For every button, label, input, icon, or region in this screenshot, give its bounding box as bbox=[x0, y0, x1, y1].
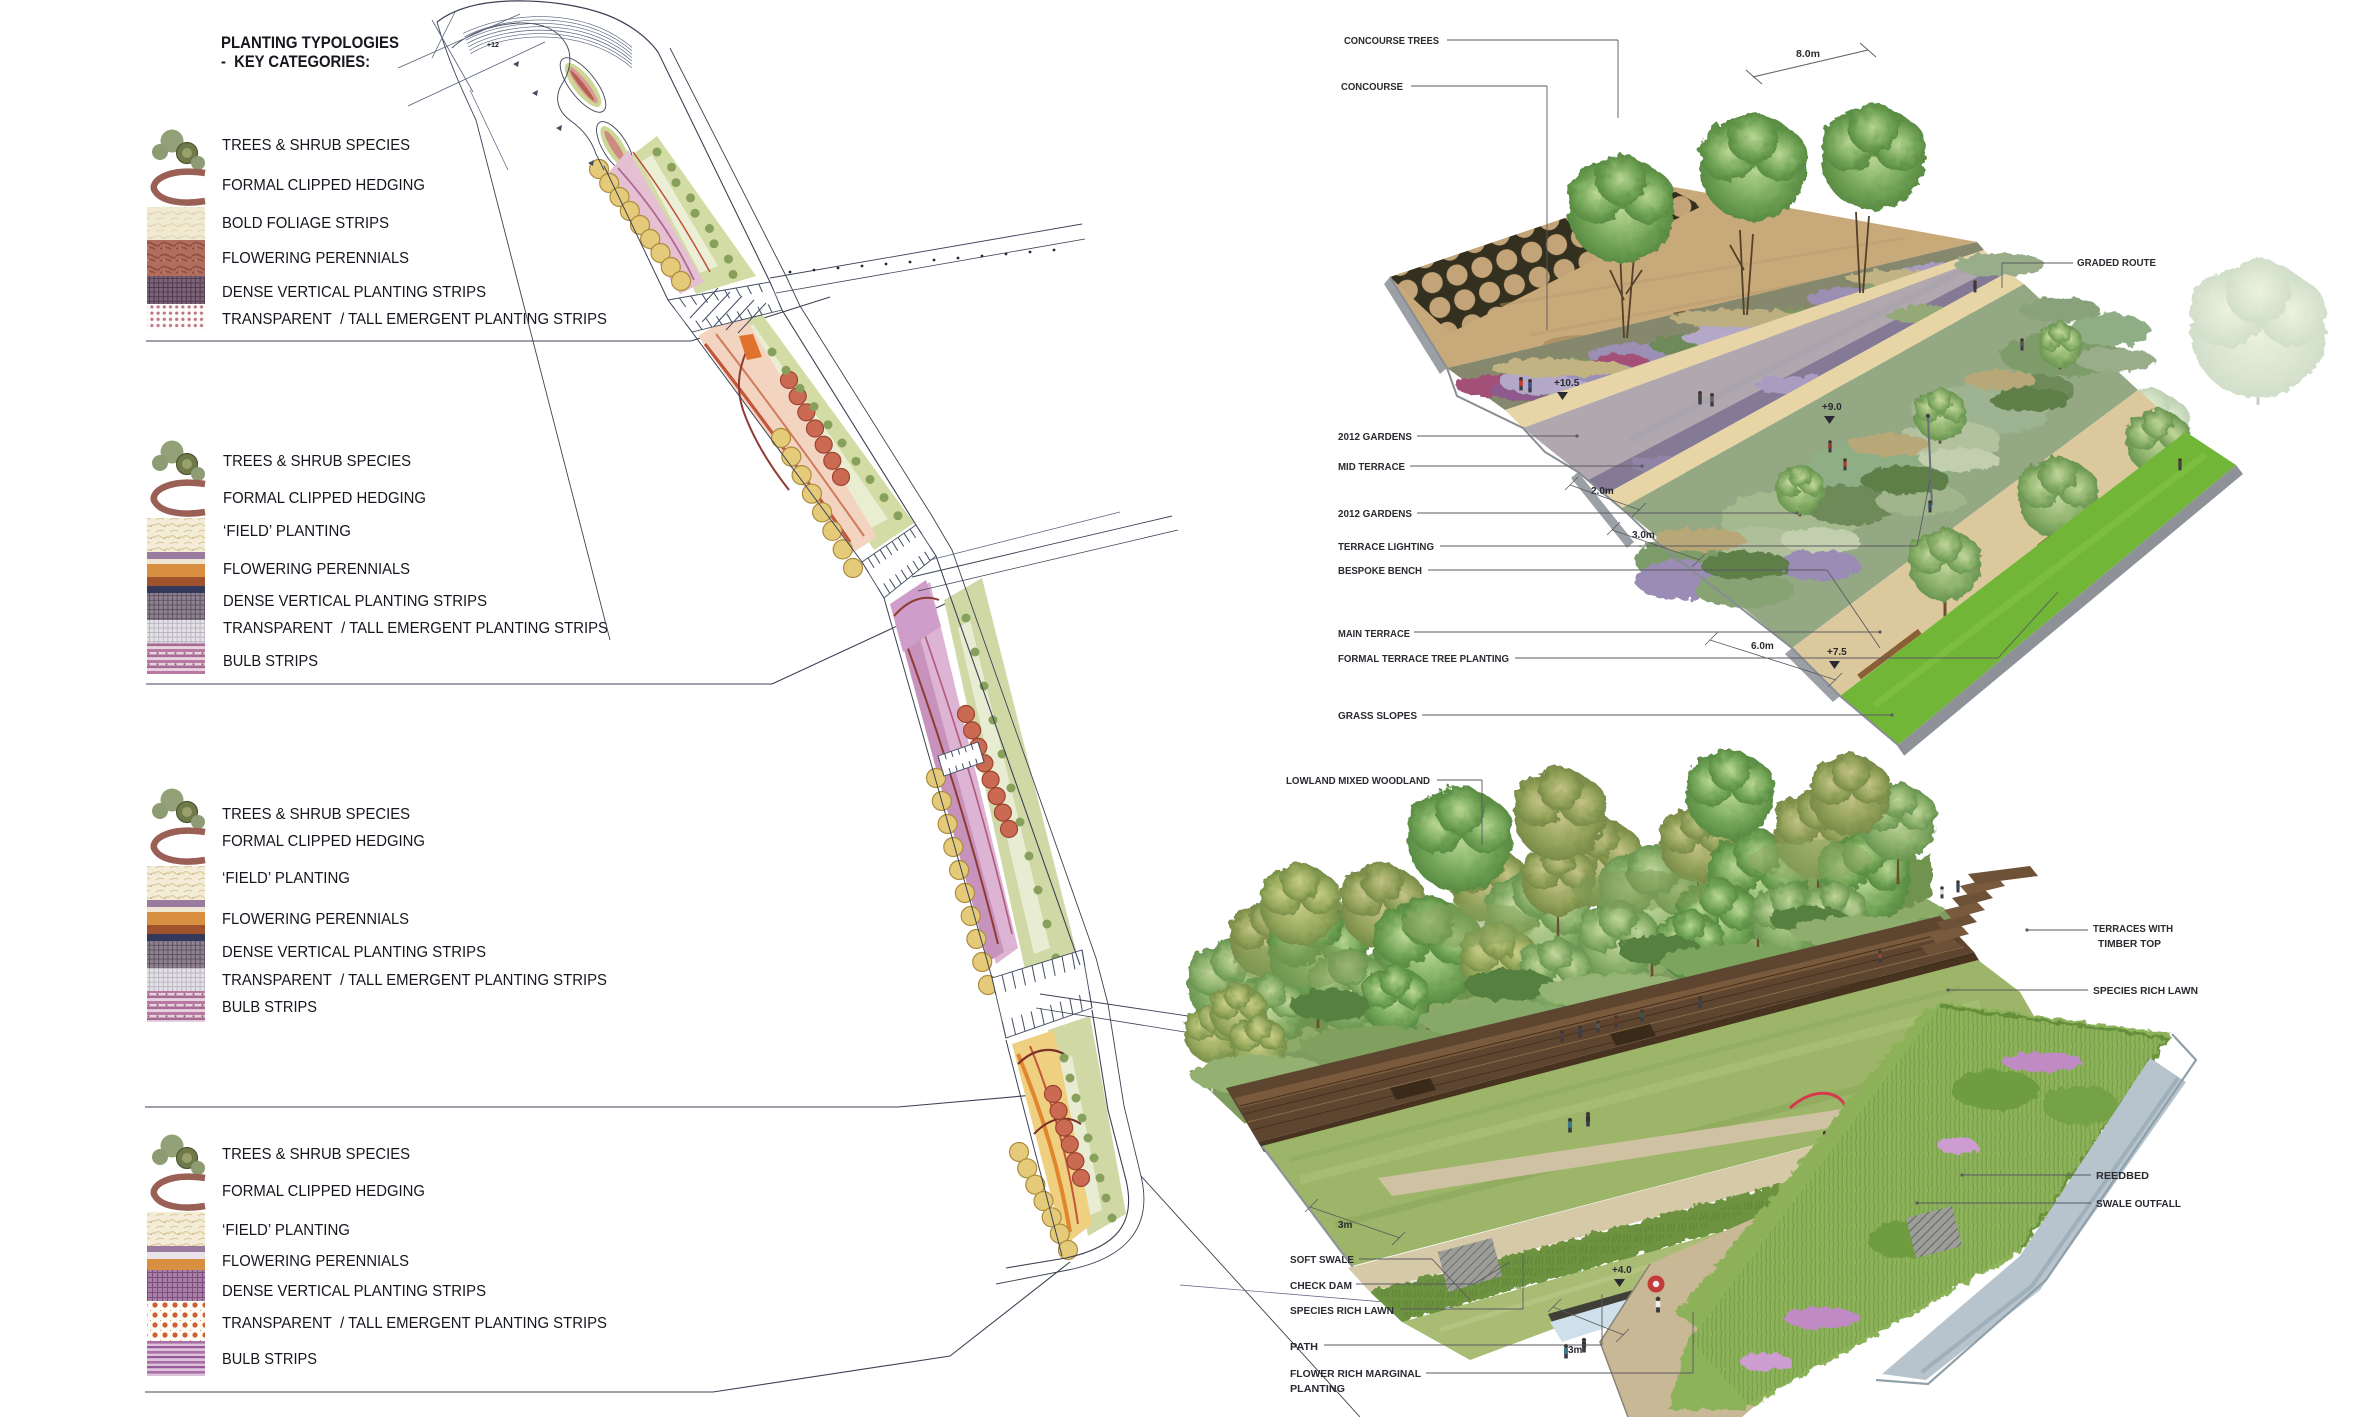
svg-text:- KEY CATEGORIES:: - KEY CATEGORIES: bbox=[221, 53, 370, 71]
svg-text:FLOWERING PERENNIALS: FLOWERING PERENNIALS bbox=[222, 911, 409, 928]
svg-text:+9.0: +9.0 bbox=[1822, 402, 1842, 413]
svg-text:MID TERRACE: MID TERRACE bbox=[1338, 461, 1405, 473]
svg-text:+7.5: +7.5 bbox=[1827, 647, 1847, 658]
svg-text:FORMAL CLIPPED HEDGING: FORMAL CLIPPED HEDGING bbox=[222, 1183, 425, 1200]
svg-text:MAIN TERRACE: MAIN TERRACE bbox=[1338, 628, 1410, 640]
svg-text:2012 GARDENS: 2012 GARDENS bbox=[1338, 508, 1412, 520]
svg-text:PLANTING TYPOLOGIES: PLANTING TYPOLOGIES bbox=[221, 34, 399, 52]
svg-text:DENSE VERTICAL PLANTING STRIPS: DENSE VERTICAL PLANTING STRIPS bbox=[222, 284, 486, 301]
svg-text:GRADED ROUTE: GRADED ROUTE bbox=[2077, 257, 2156, 269]
svg-text:FLOWER RICH MARGINAL: FLOWER RICH MARGINAL bbox=[1290, 1368, 1422, 1380]
svg-text:TREES & SHRUB SPECIES: TREES & SHRUB SPECIES bbox=[222, 137, 410, 154]
svg-text:3m: 3m bbox=[1338, 1220, 1353, 1231]
svg-text:PATH: PATH bbox=[1290, 1341, 1318, 1353]
svg-text:+10.5: +10.5 bbox=[1554, 378, 1580, 389]
svg-text:DENSE VERTICAL PLANTING STRIPS: DENSE VERTICAL PLANTING STRIPS bbox=[222, 944, 486, 961]
svg-text:2012 GARDENS: 2012 GARDENS bbox=[1338, 431, 1412, 443]
svg-text:‘FIELD’ PLANTING: ‘FIELD’ PLANTING bbox=[222, 870, 350, 887]
svg-text:SOFT SWALE: SOFT SWALE bbox=[1290, 1254, 1354, 1266]
svg-text:TERRACES WITH: TERRACES WITH bbox=[2093, 923, 2173, 935]
svg-text:BESPOKE BENCH: BESPOKE BENCH bbox=[1338, 565, 1422, 577]
svg-text:FORMAL CLIPPED HEDGING: FORMAL CLIPPED HEDGING bbox=[223, 490, 426, 507]
svg-text:REEDBED: REEDBED bbox=[2096, 1170, 2149, 1182]
svg-text:+12: +12 bbox=[487, 42, 499, 49]
svg-text:LOWLAND MIXED WOODLAND: LOWLAND MIXED WOODLAND bbox=[1286, 775, 1430, 787]
svg-text:TRANSPARENT / TALL EMERGENT P: TRANSPARENT / TALL EMERGENT PLANTING STR… bbox=[222, 972, 607, 989]
svg-text:SWALE OUTFALL: SWALE OUTFALL bbox=[2096, 1198, 2182, 1210]
svg-text:TREES & SHRUB SPECIES: TREES & SHRUB SPECIES bbox=[222, 806, 410, 823]
svg-text:3m: 3m bbox=[1568, 1345, 1583, 1356]
svg-text:CHECK DAM: CHECK DAM bbox=[1290, 1280, 1352, 1292]
svg-text:FLOWERING PERENNIALS: FLOWERING PERENNIALS bbox=[223, 561, 410, 578]
svg-text:FORMAL CLIPPED HEDGING: FORMAL CLIPPED HEDGING bbox=[222, 833, 425, 850]
svg-text:3.0m: 3.0m bbox=[1632, 530, 1655, 541]
svg-text:TRANSPARENT / TALL EMERGENT P: TRANSPARENT / TALL EMERGENT PLANTING STR… bbox=[223, 620, 608, 637]
svg-text:‘FIELD’ PLANTING: ‘FIELD’ PLANTING bbox=[222, 1222, 350, 1239]
svg-text:TREES & SHRUB SPECIES: TREES & SHRUB SPECIES bbox=[222, 1146, 410, 1163]
svg-text:TREES & SHRUB SPECIES: TREES & SHRUB SPECIES bbox=[223, 453, 411, 470]
svg-text:BULB STRIPS: BULB STRIPS bbox=[222, 1351, 317, 1368]
svg-text:‘FIELD’ PLANTING: ‘FIELD’ PLANTING bbox=[223, 523, 351, 540]
svg-text:FLOWERING PERENNIALS: FLOWERING PERENNIALS bbox=[222, 1253, 409, 1270]
svg-text:BOLD FOLIAGE STRIPS: BOLD FOLIAGE STRIPS bbox=[222, 215, 389, 232]
svg-text:SPECIES RICH LAWN: SPECIES RICH LAWN bbox=[1290, 1305, 1394, 1317]
svg-text:FORMAL CLIPPED HEDGING: FORMAL CLIPPED HEDGING bbox=[222, 177, 425, 194]
svg-text:PLANTING: PLANTING bbox=[1290, 1383, 1345, 1395]
svg-text:SPECIES RICH LAWN: SPECIES RICH LAWN bbox=[2093, 985, 2198, 997]
svg-text:TERRACE LIGHTING: TERRACE LIGHTING bbox=[1338, 541, 1434, 553]
svg-text:FLOWERING PERENNIALS: FLOWERING PERENNIALS bbox=[222, 250, 409, 267]
svg-text:8.0m: 8.0m bbox=[1796, 48, 1820, 60]
svg-text:TRANSPARENT / TALL EMERGENT P: TRANSPARENT / TALL EMERGENT PLANTING STR… bbox=[222, 1315, 607, 1332]
svg-text:+4.0: +4.0 bbox=[1612, 1265, 1632, 1276]
svg-text:TIMBER TOP: TIMBER TOP bbox=[2098, 938, 2161, 950]
svg-text:CONCOURSE: CONCOURSE bbox=[1341, 81, 1403, 93]
svg-text:BULB STRIPS: BULB STRIPS bbox=[223, 653, 318, 670]
svg-text:DENSE VERTICAL PLANTING STRIPS: DENSE VERTICAL PLANTING STRIPS bbox=[222, 1283, 486, 1300]
svg-text:CONCOURSE TREES: CONCOURSE TREES bbox=[1344, 35, 1439, 47]
svg-text:2.0m: 2.0m bbox=[1591, 486, 1614, 497]
svg-text:DENSE VERTICAL PLANTING STRIPS: DENSE VERTICAL PLANTING STRIPS bbox=[223, 593, 487, 610]
svg-text:TRANSPARENT / TALL EMERGENT P: TRANSPARENT / TALL EMERGENT PLANTING STR… bbox=[222, 311, 607, 328]
svg-text:6.0m: 6.0m bbox=[1751, 641, 1774, 652]
svg-text:BULB STRIPS: BULB STRIPS bbox=[222, 999, 317, 1016]
svg-text:GRASS SLOPES: GRASS SLOPES bbox=[1338, 710, 1417, 722]
svg-text:FORMAL TERRACE TREE PLANTING: FORMAL TERRACE TREE PLANTING bbox=[1338, 653, 1509, 665]
